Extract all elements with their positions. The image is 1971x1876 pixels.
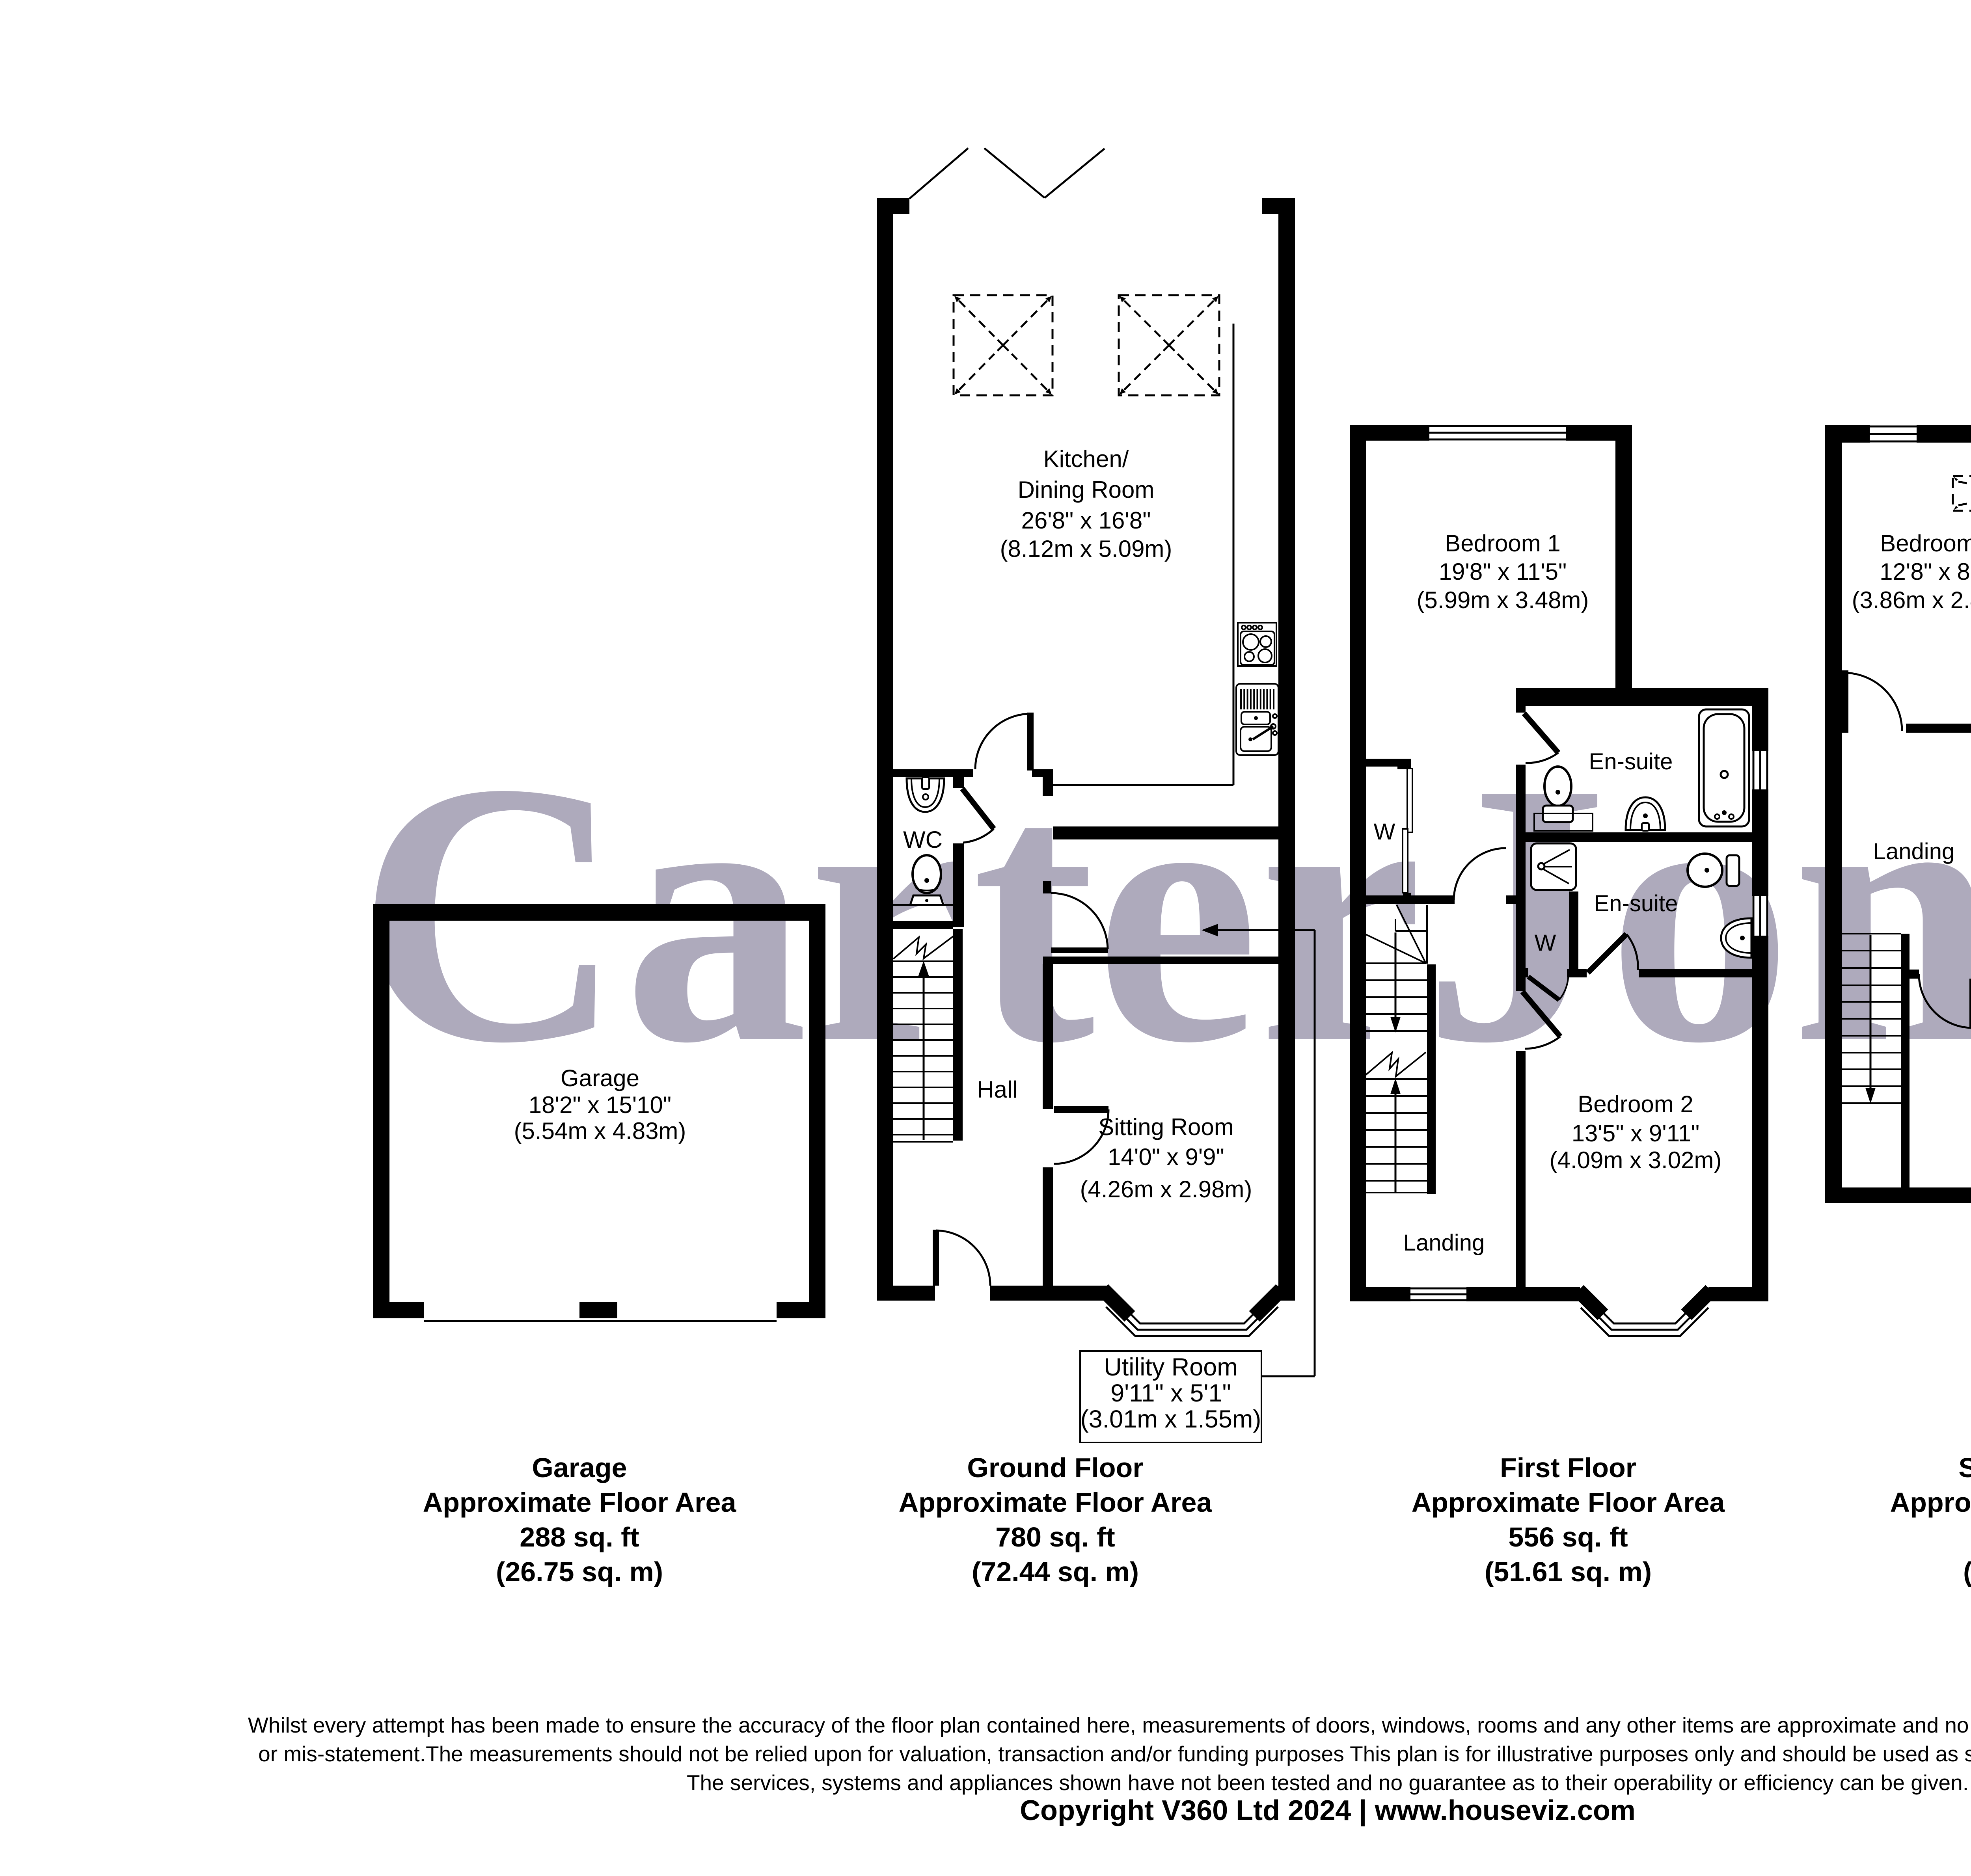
svg-text:The services, systems and appl: The services, systems and appliances sho…	[687, 1770, 1969, 1795]
svg-text:(8.12m x 5.09m): (8.12m x 5.09m)	[1000, 536, 1172, 562]
svg-text:Garage: Garage	[561, 1065, 639, 1091]
svg-text:Sitting Room: Sitting Room	[1098, 1114, 1233, 1140]
svg-text:Bedroom 2: Bedroom 2	[1578, 1091, 1693, 1117]
svg-text:Bedroom 3: Bedroom 3	[1880, 530, 1971, 556]
svg-text:Second Floor: Second Floor	[1958, 1452, 1971, 1483]
svg-text:(5.54m x 4.83m): (5.54m x 4.83m)	[514, 1118, 686, 1144]
svg-text:Dining Room: Dining Room	[1018, 476, 1155, 503]
svg-text:(72.44 sq. m): (72.44 sq. m)	[972, 1556, 1139, 1587]
svg-text:(4.09m x 3.02m): (4.09m x 3.02m)	[1550, 1147, 1722, 1173]
svg-text:9'11" x 5'1": 9'11" x 5'1"	[1110, 1379, 1231, 1407]
svg-text:(4.26m x 2.98m): (4.26m x 2.98m)	[1080, 1176, 1252, 1202]
svg-text:First Floor: First Floor	[1500, 1452, 1636, 1483]
svg-text:(3.01m x 1.55m): (3.01m x 1.55m)	[1081, 1405, 1261, 1433]
svg-text:14'0" x 9'9": 14'0" x 9'9"	[1108, 1144, 1224, 1170]
svg-text:Landing: Landing	[1403, 1230, 1485, 1256]
svg-text:(36.20 sq. m): (36.20 sq. m)	[1963, 1556, 1971, 1587]
svg-text:18'2" x 15'10": 18'2" x 15'10"	[529, 1092, 671, 1118]
svg-text:Copyright V360 Ltd 2024 | www.: Copyright V360 Ltd 2024 | www.houseviz.c…	[1020, 1795, 1636, 1826]
svg-text:26'8" x 16'8": 26'8" x 16'8"	[1021, 507, 1151, 534]
svg-text:Garage: Garage	[532, 1452, 627, 1483]
svg-text:(3.86m x 2.49m): (3.86m x 2.49m)	[1852, 587, 1971, 613]
svg-text:Approximate Floor Area: Approximate Floor Area	[423, 1487, 737, 1518]
svg-text:(51.61 sq. m): (51.61 sq. m)	[1485, 1556, 1652, 1587]
svg-text:12'8" x 8'2": 12'8" x 8'2"	[1880, 558, 1971, 585]
svg-text:780 sq. ft: 780 sq. ft	[995, 1522, 1115, 1552]
svg-text:En-suite: En-suite	[1594, 891, 1678, 916]
svg-text:19'8" x 11'5": 19'8" x 11'5"	[1439, 558, 1567, 585]
svg-text:556 sq. ft: 556 sq. ft	[1508, 1522, 1628, 1552]
svg-text:Whilst every attempt has been: Whilst every attempt has been made to en…	[248, 1713, 1971, 1737]
svg-text:(26.75 sq. m): (26.75 sq. m)	[496, 1556, 663, 1587]
svg-text:Landing: Landing	[1873, 839, 1954, 864]
svg-text:WC: WC	[903, 826, 943, 853]
svg-text:(5.99m x 3.48m): (5.99m x 3.48m)	[1417, 587, 1589, 613]
svg-text:288 sq. ft: 288 sq. ft	[520, 1522, 639, 1552]
svg-text:Approximate Floor Area: Approximate Floor Area	[899, 1487, 1213, 1518]
svg-text:W: W	[1374, 819, 1395, 845]
svg-text:13'5" x 9'11": 13'5" x 9'11"	[1572, 1120, 1700, 1146]
svg-text:Kitchen/: Kitchen/	[1043, 446, 1129, 472]
svg-text:Approximate Floor Area: Approximate Floor Area	[1412, 1487, 1725, 1518]
svg-text:Hall: Hall	[977, 1076, 1017, 1103]
svg-text:Utility Room: Utility Room	[1104, 1353, 1238, 1381]
svg-text:En-suite: En-suite	[1589, 749, 1673, 774]
svg-text:or mis-statement.The measureme: or mis-statement.The measurements should…	[258, 1742, 1971, 1766]
svg-text:Approximate Floor Area: Approximate Floor Area	[1890, 1487, 1971, 1518]
svg-text:Bedroom 1: Bedroom 1	[1445, 530, 1561, 556]
svg-text:Ground Floor: Ground Floor	[967, 1452, 1143, 1483]
svg-text:W: W	[1535, 930, 1556, 956]
